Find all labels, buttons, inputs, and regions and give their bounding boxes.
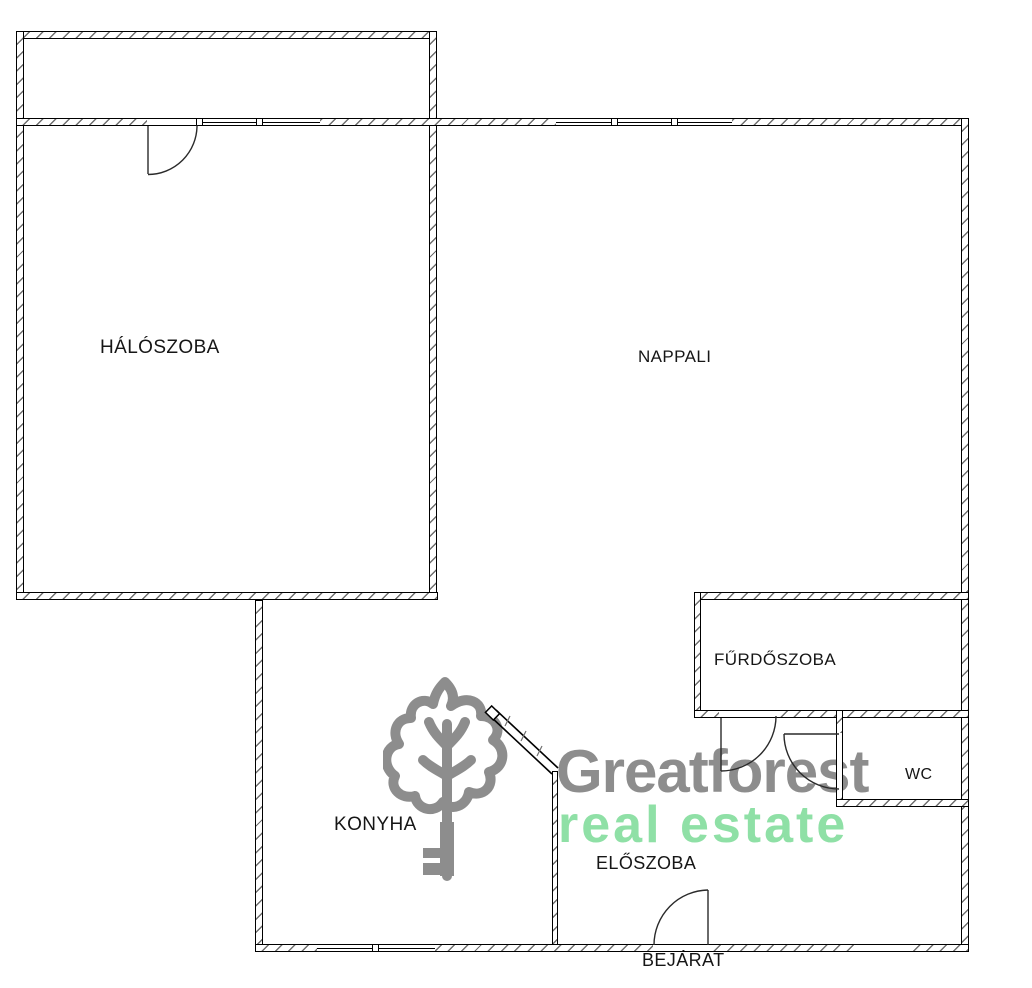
room-label-nappali: NAPPALI xyxy=(638,347,711,367)
diagonal-wall-cap xyxy=(485,706,499,720)
balcony-door xyxy=(148,126,197,175)
room-label-furdoszoba: FŰRDŐSZOBA xyxy=(714,650,836,670)
room-label-wc: WC xyxy=(905,766,932,784)
wc-door xyxy=(784,734,839,789)
door-swing-layer xyxy=(0,0,1032,988)
floor-plan: Greatforest real estate xyxy=(0,0,1032,988)
bathroom-door xyxy=(721,716,776,771)
room-label-eloszoba: ELŐSZOBA xyxy=(596,853,696,874)
entrance-label: BEJÁRAT xyxy=(642,950,724,971)
room-label-haloszoba: HÁLÓSZOBA xyxy=(100,337,220,359)
room-label-konyha: KONYHA xyxy=(334,814,417,836)
wall-diagonal xyxy=(485,706,558,774)
entrance-door xyxy=(654,890,708,945)
